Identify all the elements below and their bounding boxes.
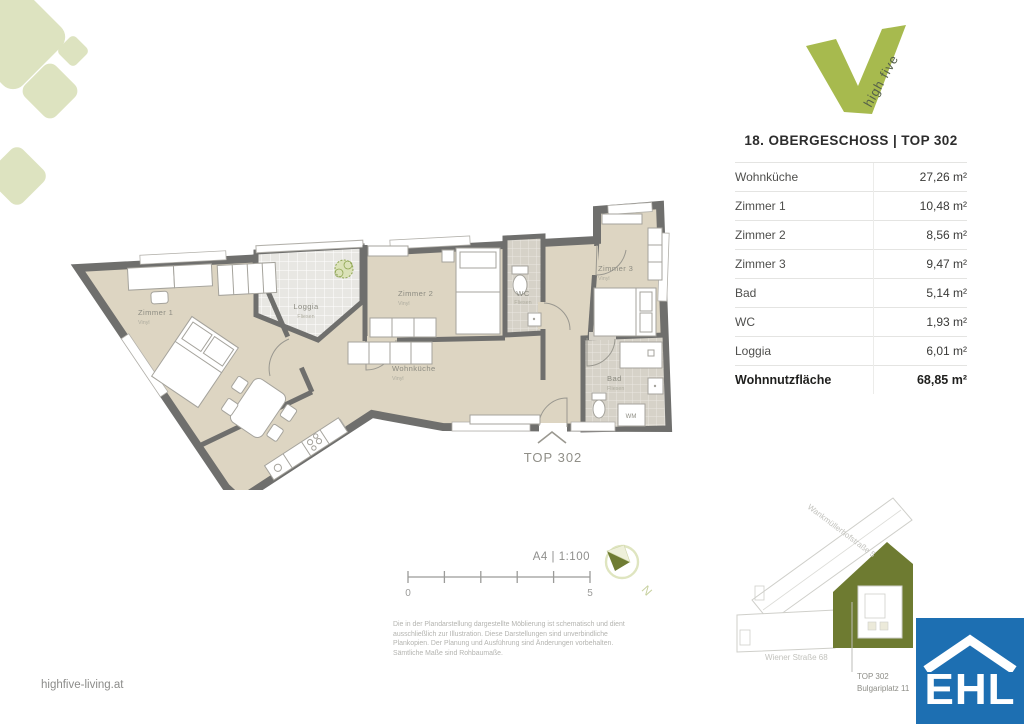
room-label: Zimmer 2 <box>735 228 786 242</box>
toilet-icon <box>593 400 605 418</box>
scale-bar <box>408 571 590 583</box>
room-area: 5,14 m² <box>926 286 967 300</box>
room-label: Zimmer 1 <box>735 199 786 213</box>
scale-end: 5 <box>587 588 593 599</box>
north-label: N <box>639 583 655 599</box>
unit-area-table: 18. OBERGESCHOSS | TOP 302 Wohnküche 27,… <box>735 133 967 394</box>
wardrobe-icon <box>217 262 276 295</box>
wardrobe-icon <box>370 318 436 337</box>
shower-icon <box>620 342 662 368</box>
label-loggia: Loggia <box>293 302 319 311</box>
table-row-total: Wohnnutzfläche 68,85 m² <box>735 366 967 394</box>
unit-title: 18. OBERGESCHOSS | TOP 302 <box>735 133 967 148</box>
decor-diamond-icon <box>0 143 50 208</box>
room-area: 6,01 m² <box>926 344 967 358</box>
building-bottom <box>737 610 835 652</box>
highfive-logo: high five <box>795 18 915 120</box>
label-wohnkueche: Wohnküche <box>392 364 436 373</box>
unit-label: TOP 302 <box>524 450 583 465</box>
table-row: Zimmer 1 10,48 m² <box>735 192 967 221</box>
area-rows: Wohnküche 27,26 m² Zimmer 1 10,48 m² Zim… <box>735 162 967 394</box>
ehl-wordmark: EHL <box>925 668 1016 712</box>
svg-text:Vinyl: Vinyl <box>392 376 404 382</box>
kitchen-island-icon <box>348 342 432 364</box>
unit-footprint <box>858 586 902 638</box>
table-row: Loggia 6,01 m² <box>735 337 967 366</box>
table-row: Wohnküche 27,26 m² <box>735 163 967 192</box>
total-area: 68,85 m² <box>917 373 967 387</box>
svg-text:Fliesen: Fliesen <box>297 314 314 320</box>
table-row: WC 1,93 m² <box>735 308 967 337</box>
unit-marker: TOP 302 <box>524 432 583 465</box>
room-label: Loggia <box>735 344 771 358</box>
room-label: Zimmer 3 <box>735 257 786 271</box>
room-label: Wohnküche <box>735 170 798 184</box>
siteplan-unit-label: TOP 302 <box>857 672 889 681</box>
street-label-bottom: Wiener Straße 68 <box>765 653 828 662</box>
table-row: Zimmer 2 8,56 m² <box>735 221 967 250</box>
wardrobe-icon <box>648 228 662 280</box>
room-area: 27,26 m² <box>920 170 967 184</box>
sideboard-icon <box>470 415 540 424</box>
wm-label: WM <box>626 414 637 420</box>
svg-text:Vinyl: Vinyl <box>138 320 150 326</box>
svg-text:Vinyl: Vinyl <box>598 276 610 282</box>
room-area: 9,47 m² <box>926 257 967 271</box>
scale-label: A4 | 1:100 <box>533 551 590 563</box>
table-row: Bad 5,14 m² <box>735 279 967 308</box>
total-label: Wohnnutzfläche <box>735 373 831 387</box>
table-column-divider <box>873 163 874 394</box>
ehl-logo: EHL <box>916 618 1024 724</box>
room-label: Bad <box>735 286 756 300</box>
room-area: 8,56 m² <box>926 228 967 242</box>
website-link[interactable]: highfive-living.at <box>41 679 123 691</box>
north-compass-icon: N <box>606 545 655 598</box>
label-zimmer1: Zimmer 1 <box>138 308 173 317</box>
disclaimer-text: Die in der Plandarstellung dargestellte … <box>393 620 703 658</box>
label-bad: Bad <box>607 374 622 383</box>
expose-page: high five 18. OBERGESCHOSS | TOP 302 Woh… <box>0 0 1024 724</box>
plan-annotations: A4 | 1:100 0 5 N <box>390 540 670 602</box>
room-area: 10,48 m² <box>920 199 967 213</box>
label-wc: WC <box>516 289 530 298</box>
svg-text:Vinyl: Vinyl <box>398 301 410 307</box>
label-zimmer2: Zimmer 2 <box>398 289 433 298</box>
room-area: 1,93 m² <box>926 315 967 329</box>
room-label: WC <box>735 315 755 329</box>
scale-start: 0 <box>405 588 411 599</box>
svg-text:Fliesen: Fliesen <box>514 300 531 306</box>
washing-machine-icon: WM <box>618 404 645 426</box>
entrance-chevron-icon <box>538 432 566 443</box>
siteplan-address-label: Bulgariplatz 11 <box>857 684 910 693</box>
label-zimmer3: Zimmer 3 <box>598 264 633 273</box>
table-row: Zimmer 3 9,47 m² <box>735 250 967 279</box>
floor-plan: WM Zimmer 1 Vinyl Loggia Fliesen Zimmer … <box>60 190 700 490</box>
svg-text:Fliesen: Fliesen <box>607 386 624 392</box>
plant-icon <box>335 260 353 278</box>
